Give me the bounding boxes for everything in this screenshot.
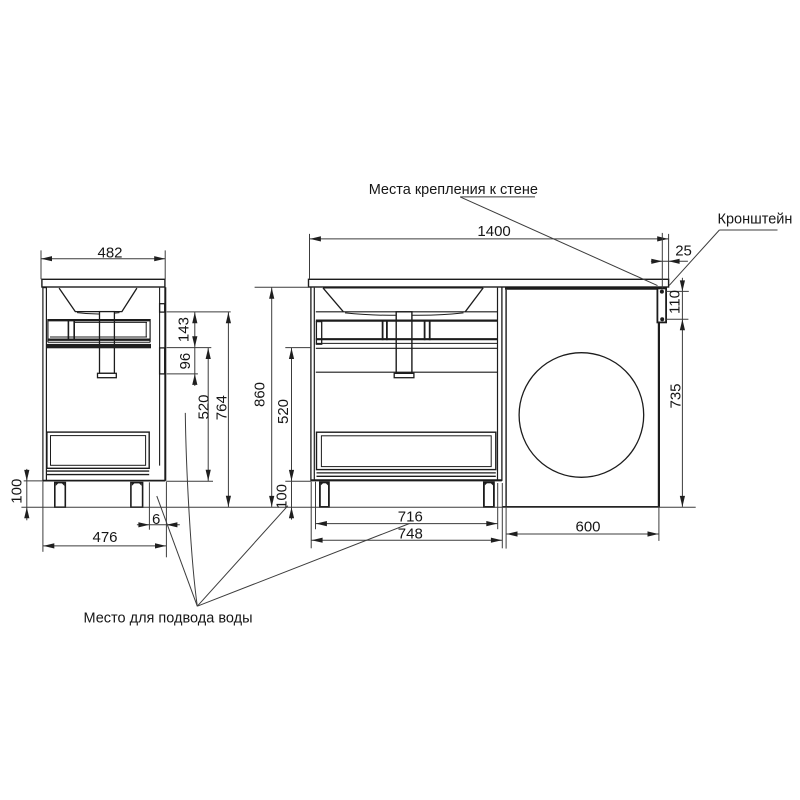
svg-text:Места крепления к стене: Места крепления к стене [369,182,538,198]
svg-text:6: 6 [152,511,160,528]
svg-text:520: 520 [195,394,212,419]
svg-text:476: 476 [93,529,118,546]
svg-text:748: 748 [398,525,423,542]
svg-text:520: 520 [275,399,292,424]
svg-text:716: 716 [398,509,423,526]
svg-text:600: 600 [576,518,601,535]
svg-text:735: 735 [667,383,684,408]
svg-text:860: 860 [251,382,268,407]
svg-text:25: 25 [675,242,692,259]
svg-text:764: 764 [214,395,231,420]
svg-text:100: 100 [9,479,26,504]
svg-text:110: 110 [667,290,684,314]
svg-text:1400: 1400 [477,223,510,240]
svg-text:96: 96 [177,353,194,370]
svg-text:Кронштейн: Кронштейн [718,212,793,228]
svg-text:482: 482 [98,244,123,261]
svg-text:143: 143 [176,317,193,342]
svg-text:Место для подвода воды: Место для подвода воды [84,610,253,626]
svg-text:100: 100 [273,484,290,509]
